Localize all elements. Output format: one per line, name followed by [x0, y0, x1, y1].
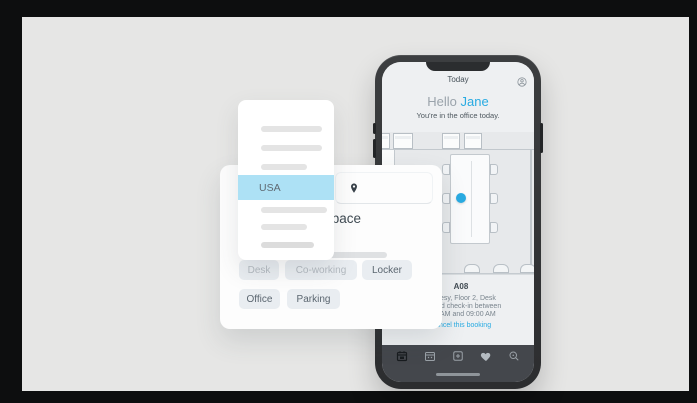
volume-up-button: [373, 123, 376, 134]
skeleton-option[interactable]: [261, 224, 307, 230]
calendar-schedule-icon[interactable]: [424, 350, 436, 362]
greeting-word: Hello: [427, 94, 457, 109]
location-pin-icon: [348, 182, 360, 195]
chair: [490, 222, 498, 233]
chair: [464, 264, 480, 273]
skeleton-option[interactable]: [261, 242, 314, 248]
phone-notch: [426, 62, 490, 71]
app-header: Today Hello Jane You're in the office to…: [382, 62, 534, 132]
chair: [442, 164, 450, 175]
desk-square: [442, 133, 460, 149]
chip-locker[interactable]: Locker: [362, 260, 412, 280]
stage: Today Hello Jane You're in the office to…: [0, 0, 697, 403]
dropdown-option-label: USA: [259, 182, 281, 194]
power-button: [540, 123, 543, 153]
skeleton-option[interactable]: [261, 145, 322, 151]
chair: [493, 264, 509, 273]
chair: [490, 164, 498, 175]
add-booking-icon[interactable]: [452, 350, 464, 362]
desk-square: [393, 133, 413, 149]
chair: [442, 193, 450, 204]
tab-bar: [382, 345, 534, 382]
map-wall: [382, 149, 534, 150]
dropdown-option-usa[interactable]: USA: [238, 175, 334, 200]
booking-checkin-line1: nd check-in between: [437, 303, 501, 310]
page-title: Today: [382, 75, 534, 84]
greeting-subtitle: You're in the office today.: [382, 111, 534, 120]
greeting: Hello Jane: [382, 94, 534, 109]
map-wall: [530, 149, 532, 273]
chip-office[interactable]: Office: [239, 289, 280, 309]
chip-parking[interactable]: Parking: [287, 289, 340, 309]
booking-checkin-line2: AM and 09:00 AM: [440, 311, 496, 318]
canvas: Today Hello Jane You're in the office to…: [22, 17, 689, 391]
skeleton-option[interactable]: [261, 126, 322, 132]
skeleton-option[interactable]: [261, 207, 327, 213]
calendar-booking-icon[interactable]: [396, 350, 408, 362]
booked-desk-marker[interactable]: [456, 193, 466, 203]
search-icon[interactable]: [508, 350, 520, 362]
country-dropdown: USA: [238, 100, 334, 260]
desk-square: [464, 133, 482, 149]
user-name: Jane: [461, 94, 489, 109]
chair: [442, 222, 450, 233]
chair: [520, 264, 534, 273]
booking-location: esy, Floor 2, Desk: [440, 295, 496, 302]
skeleton-option[interactable]: [261, 164, 307, 170]
chip-desk[interactable]: Desk: [239, 260, 279, 280]
favorites-heart-icon[interactable]: [480, 350, 492, 362]
chip-co-working[interactable]: Co-working: [285, 260, 357, 280]
desk-square: [382, 133, 390, 149]
chair: [490, 193, 498, 204]
home-indicator: [436, 373, 480, 376]
volume-down-button: [373, 139, 376, 158]
location-search-input[interactable]: [335, 172, 433, 204]
profile-icon[interactable]: [517, 74, 527, 84]
